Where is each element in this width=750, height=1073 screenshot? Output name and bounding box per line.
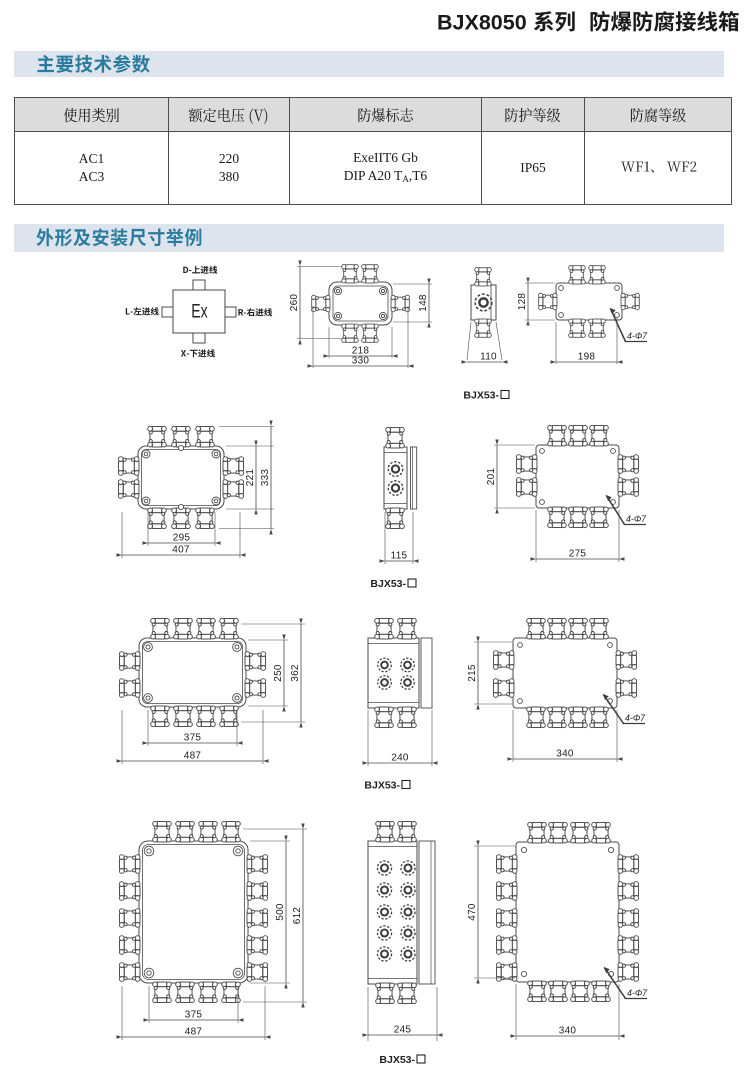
svg-text:487: 487 (184, 751, 202, 762)
svg-text:260: 260 (289, 294, 300, 312)
svg-text:4-Φ7: 4-Φ7 (627, 988, 648, 998)
svg-text:340: 340 (559, 1026, 577, 1037)
svg-text:BJX53-: BJX53- (379, 1054, 415, 1066)
svg-text:470: 470 (467, 903, 478, 921)
svg-text:128: 128 (517, 293, 528, 311)
svg-text:BJX53-: BJX53- (370, 578, 406, 590)
svg-text:333: 333 (260, 469, 271, 487)
svg-text:4-Φ7: 4-Φ7 (626, 514, 647, 524)
svg-text:245: 245 (394, 1025, 412, 1036)
svg-text:612: 612 (292, 907, 303, 925)
svg-text:375: 375 (185, 1010, 203, 1021)
svg-text:BJX53-: BJX53- (364, 780, 400, 792)
svg-text:275: 275 (569, 549, 587, 560)
svg-text:330: 330 (352, 356, 370, 367)
svg-text:215: 215 (467, 664, 478, 682)
svg-text:Ex: Ex (191, 300, 208, 322)
svg-text:198: 198 (578, 352, 596, 363)
svg-text:148: 148 (418, 294, 429, 312)
svg-text:375: 375 (184, 733, 202, 744)
svg-text:4-Φ7: 4-Φ7 (627, 331, 648, 341)
svg-text:295: 295 (173, 533, 191, 544)
svg-text:250: 250 (273, 664, 284, 682)
svg-text:500: 500 (275, 903, 286, 921)
svg-text:221: 221 (245, 469, 256, 487)
svg-text:BJX53-: BJX53- (463, 390, 499, 402)
svg-text:4-Φ7: 4-Φ7 (625, 713, 646, 723)
svg-text:115: 115 (391, 551, 408, 562)
svg-text:201: 201 (486, 468, 497, 486)
svg-text:362: 362 (290, 664, 301, 682)
svg-text:240: 240 (391, 753, 409, 764)
svg-text:407: 407 (172, 545, 190, 556)
svg-text:340: 340 (556, 749, 574, 760)
svg-text:110: 110 (480, 352, 497, 363)
svg-text:BJX8050: BJX8050 (437, 11, 527, 35)
svg-text:487: 487 (185, 1027, 203, 1038)
